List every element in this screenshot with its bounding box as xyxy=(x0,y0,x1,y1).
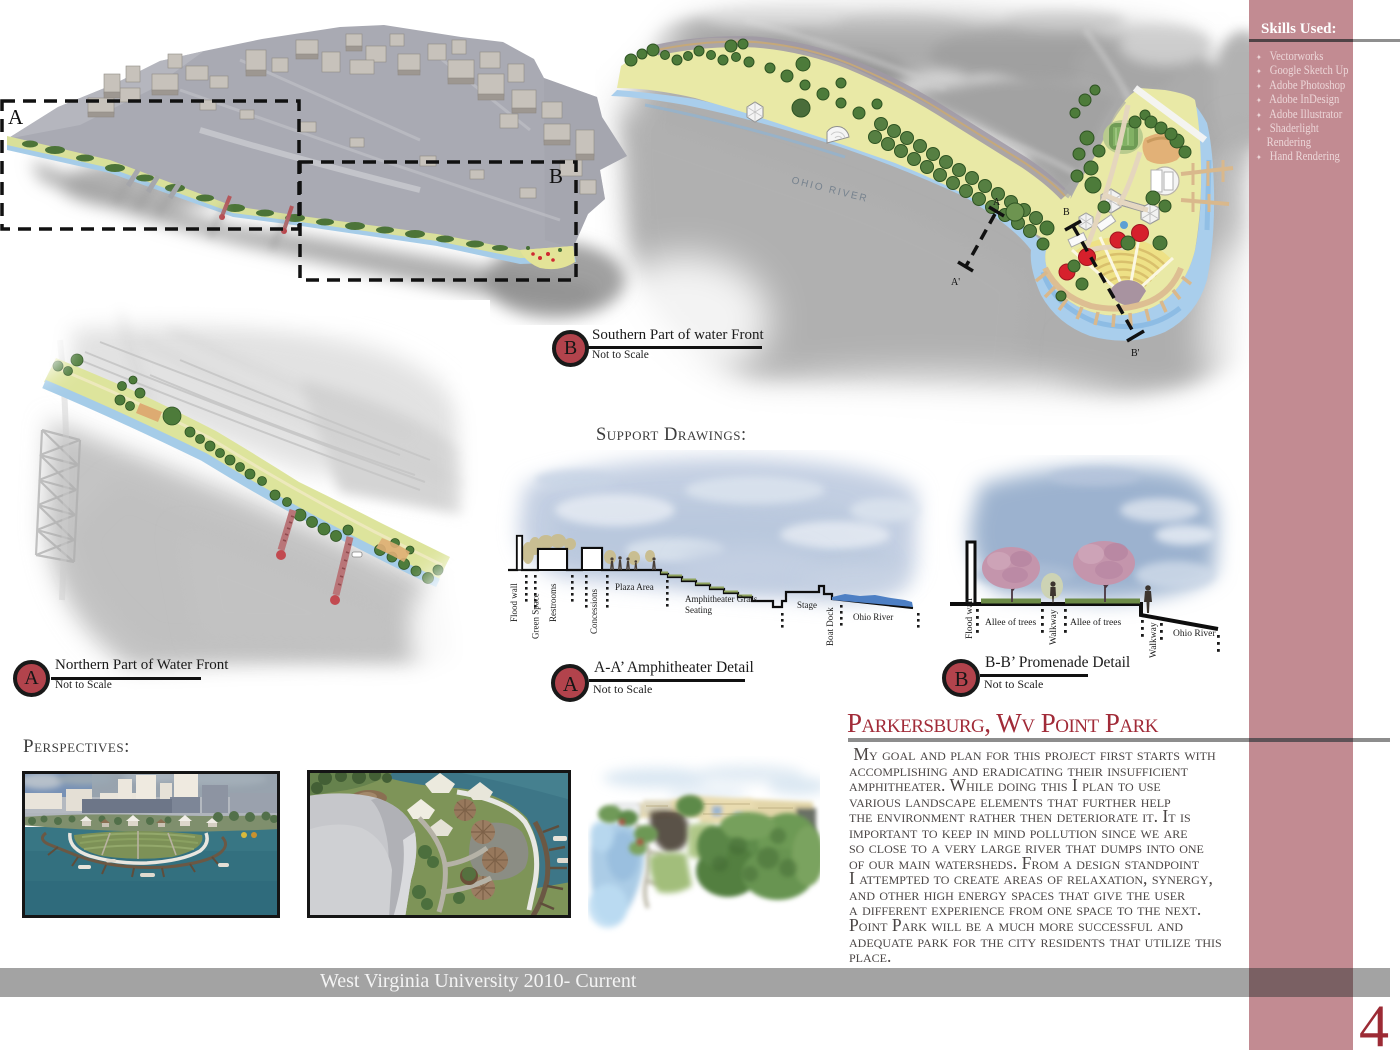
svg-text:Stage: Stage xyxy=(797,600,817,610)
svg-text:Walkway: Walkway xyxy=(1049,609,1059,645)
svg-text:Flood wall: Flood wall xyxy=(509,583,519,622)
svg-text:Concessions: Concessions xyxy=(589,589,599,634)
svg-text:Allee of trees: Allee of trees xyxy=(1070,617,1121,628)
svg-text:Allee of trees: Allee of trees xyxy=(985,617,1036,628)
svg-text:B: B xyxy=(549,164,563,188)
svg-text:Restrooms: Restrooms xyxy=(548,583,558,622)
svg-text:Green Space: Green Space xyxy=(531,593,541,639)
svg-text:A: A xyxy=(8,105,24,129)
svg-text:Walkway: Walkway xyxy=(1149,622,1159,658)
svg-text:Ohio River: Ohio River xyxy=(1173,629,1216,639)
svg-text:A: A xyxy=(993,197,1001,208)
svg-text:A': A' xyxy=(951,277,960,288)
svg-text:Amphitheater Grass: Amphitheater Grass xyxy=(685,594,758,604)
svg-text:Ohio River: Ohio River xyxy=(853,612,893,622)
svg-text:Seating: Seating xyxy=(685,605,712,615)
svg-text:Plaza Area: Plaza Area xyxy=(615,582,654,592)
svg-text:Flood wall: Flood wall xyxy=(965,598,975,639)
svg-text:B: B xyxy=(1063,207,1070,218)
svg-text:B': B' xyxy=(1131,348,1140,359)
svg-text:Boat Dock: Boat Dock xyxy=(825,607,835,646)
